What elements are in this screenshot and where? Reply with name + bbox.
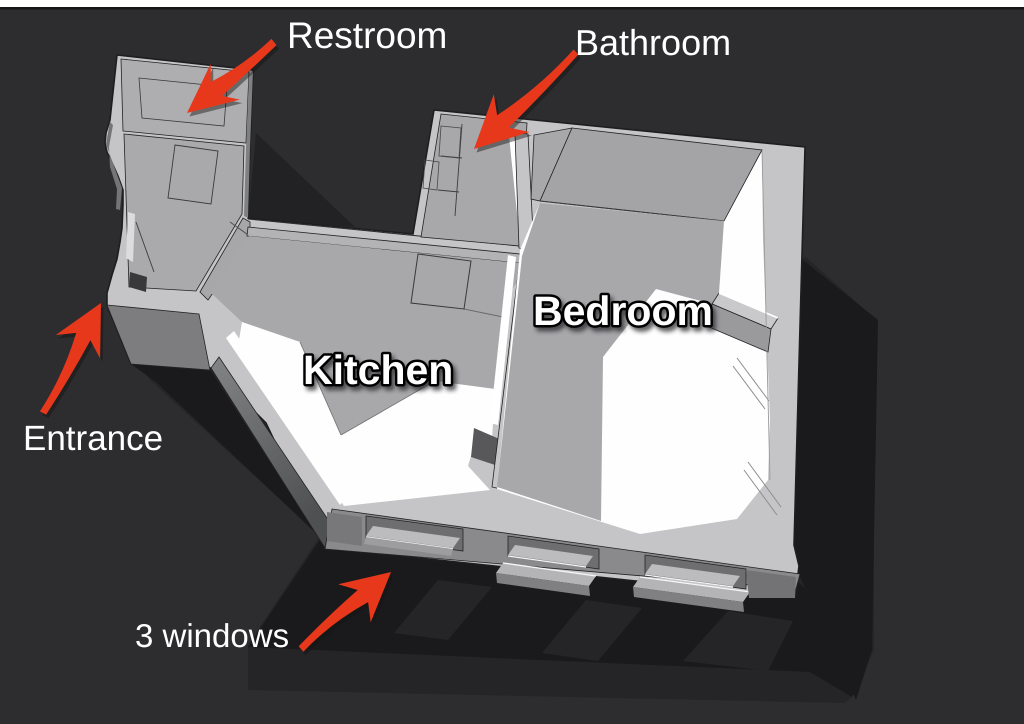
svg-text:3 windows: 3 windows [135, 617, 289, 654]
svg-text:Bathroom: Bathroom [575, 22, 731, 63]
svg-text:Restroom: Restroom [287, 15, 447, 56]
svg-text:Entrance: Entrance [23, 419, 163, 458]
svg-text:Kitchen: Kitchen [303, 347, 453, 393]
svg-text:Bedroom: Bedroom [533, 288, 713, 334]
